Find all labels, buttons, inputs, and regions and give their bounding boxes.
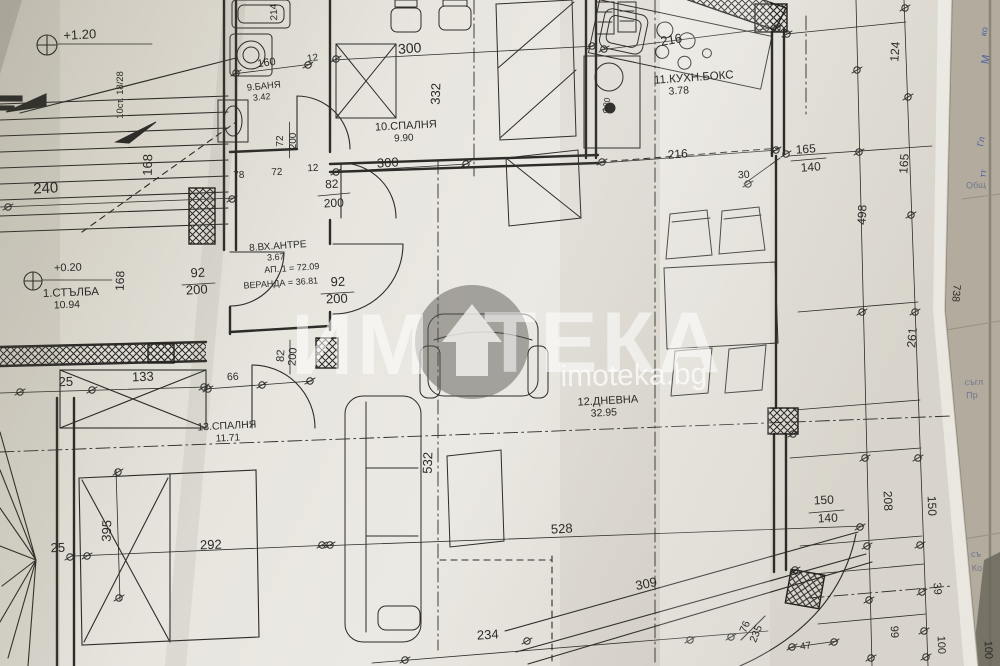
watermark-url: imoteka.bg	[560, 358, 707, 394]
door-82a-height: 200	[323, 195, 344, 210]
handwriting-3: Гл	[975, 136, 987, 147]
dim-498: 498	[854, 204, 869, 225]
window-140b: 140	[817, 510, 838, 525]
dim-528: 528	[551, 520, 573, 536]
stairs-note: 10ст. 18/28	[115, 71, 126, 119]
dim-300-bottom: 300	[377, 154, 399, 170]
dim-100b: 100	[982, 641, 995, 660]
dim-261: 261	[904, 327, 920, 348]
side-sheet-text-2: съгл	[964, 377, 983, 388]
dim-150-chain: 150	[925, 496, 940, 517]
dim-12-top: 12	[306, 52, 319, 65]
dim-738: 738	[949, 284, 962, 303]
dim-72: 72	[271, 167, 283, 179]
dim-532: 532	[420, 452, 436, 474]
watermark-brand-left: ИМ	[291, 297, 432, 393]
dim-30: 30	[738, 169, 751, 182]
dim-66: 66	[227, 371, 239, 384]
dim-240: 240	[33, 179, 59, 197]
dim-292: 292	[200, 537, 222, 553]
room-stairs-area: 10.94	[54, 299, 81, 312]
door-72-width: 72	[275, 135, 286, 147]
door-82a-width: 82	[325, 177, 339, 192]
dim-124: 124	[887, 41, 902, 62]
dim-332: 332	[428, 83, 444, 105]
dim-39: 39	[930, 582, 943, 595]
door-92b-width: 92	[330, 274, 345, 289]
side-sheet-text-4: съ	[971, 549, 982, 559]
room-bedroom10-area: 9.90	[394, 132, 414, 144]
window-140: 140	[800, 159, 821, 174]
door-72-height: 200	[288, 132, 299, 149]
room-bath-area: 3.42	[252, 91, 270, 103]
dim-395: 395	[99, 520, 115, 542]
level-mark-upper: +1.20	[63, 26, 97, 43]
handwriting-4: тт	[977, 169, 988, 179]
dim-208: 208	[881, 491, 896, 512]
dim-78: 78	[233, 170, 245, 182]
dim-214: 214	[269, 3, 281, 20]
level-mark-lower: +0.20	[54, 262, 82, 275]
dim-12-mid: 12	[307, 163, 319, 175]
door-92a-height: 200	[186, 281, 208, 297]
floor-plan-photo: +1.2010ст. 18/28168240160122149.БАНЯ3.42…	[0, 0, 1000, 666]
dim-216-kitchen-bottom: 216	[667, 146, 688, 161]
handwriting-1: ко	[978, 26, 989, 37]
dim-168-left: 168	[113, 270, 128, 291]
dim-99: 99	[888, 626, 900, 639]
window-165: 165	[795, 141, 816, 156]
dim-100a: 100	[935, 636, 948, 655]
dim-160: 160	[257, 56, 277, 70]
dim-25-band: 25	[58, 374, 73, 389]
dim-168-stairs: 168	[140, 154, 155, 176]
floor-plan-drawing: +1.2010ст. 18/28168240160122149.БАНЯ3.42…	[0, 0, 1000, 666]
room-entry-area: 3.67	[267, 251, 285, 262]
window-150: 150	[813, 492, 834, 507]
dim-165-chain: 165	[896, 153, 911, 174]
dim-25-bed: 25	[50, 540, 65, 555]
dim-300-top: 300	[397, 39, 422, 57]
dim-234: 234	[477, 626, 499, 642]
room-kitchen-area: 3.78	[668, 84, 689, 97]
dim-133: 133	[132, 369, 154, 385]
door-92a-width: 92	[190, 265, 205, 281]
side-sheet-text-3: Пр	[966, 390, 978, 400]
side-sheet-text-1: Общ	[966, 179, 987, 190]
room-living-area: 32.95	[590, 406, 617, 419]
door-82b-width: 82	[275, 349, 288, 362]
dim-47: 47	[799, 640, 812, 653]
room-bedroom13-area: 11.71	[215, 432, 240, 444]
side-sheet-text-5: Ко	[972, 563, 983, 573]
